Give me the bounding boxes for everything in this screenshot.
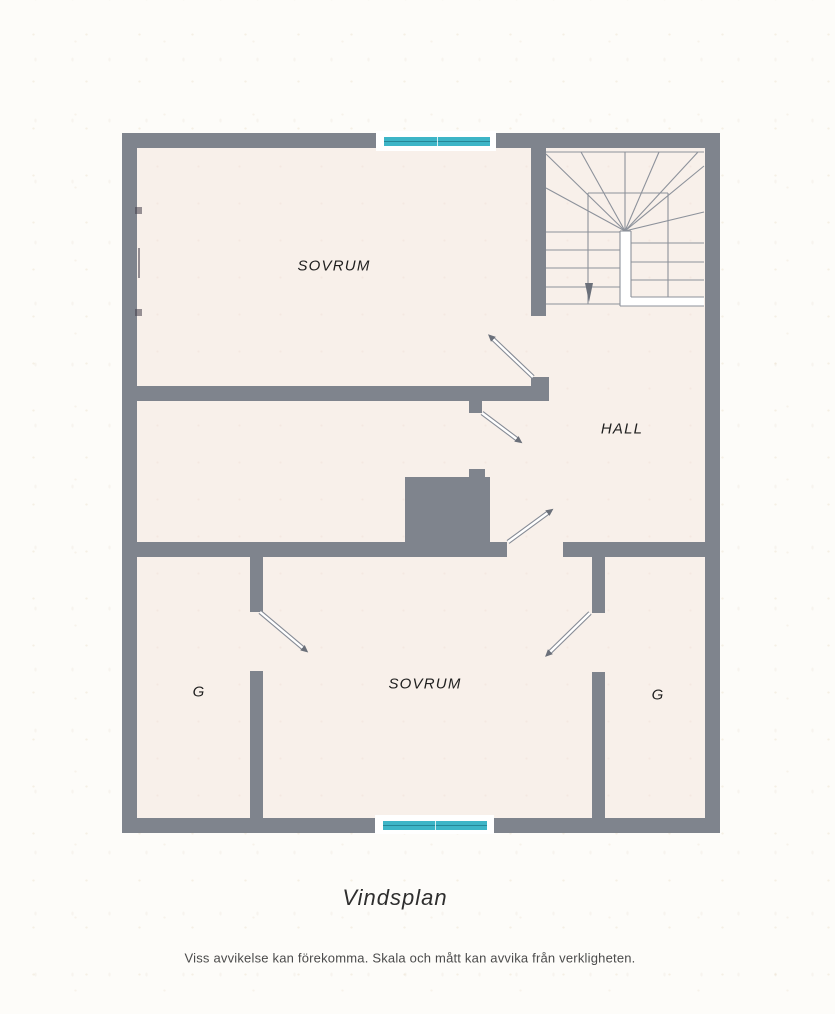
room-label-sovrum-bottom: SOVRUM: [388, 676, 461, 693]
room-label-hall: HALL: [601, 421, 643, 438]
room-label-sovrum-top: SOVRUM: [297, 258, 370, 275]
page: { "plan": { "caption": "Vindsplan", "dis…: [0, 0, 835, 1014]
room-label-closet-left: G: [193, 684, 206, 701]
door-closet-right-icon: [549, 613, 590, 653]
door-sovrum-bottom-icon: [508, 512, 549, 542]
stairs: [546, 152, 704, 306]
plan-caption: Vindsplan: [342, 885, 447, 911]
disclaimer-text: Viss avvikelse kan förekomma. Skala och …: [185, 951, 636, 966]
door-hall-middle-icon: [482, 413, 518, 440]
door-sovrum-top-icon: [492, 338, 533, 377]
plan-symbols: [122, 133, 720, 833]
door-closet-left-icon: [260, 612, 304, 649]
stairs-down-arrow-icon: [585, 283, 593, 302]
room-label-closet-right: G: [652, 687, 665, 704]
